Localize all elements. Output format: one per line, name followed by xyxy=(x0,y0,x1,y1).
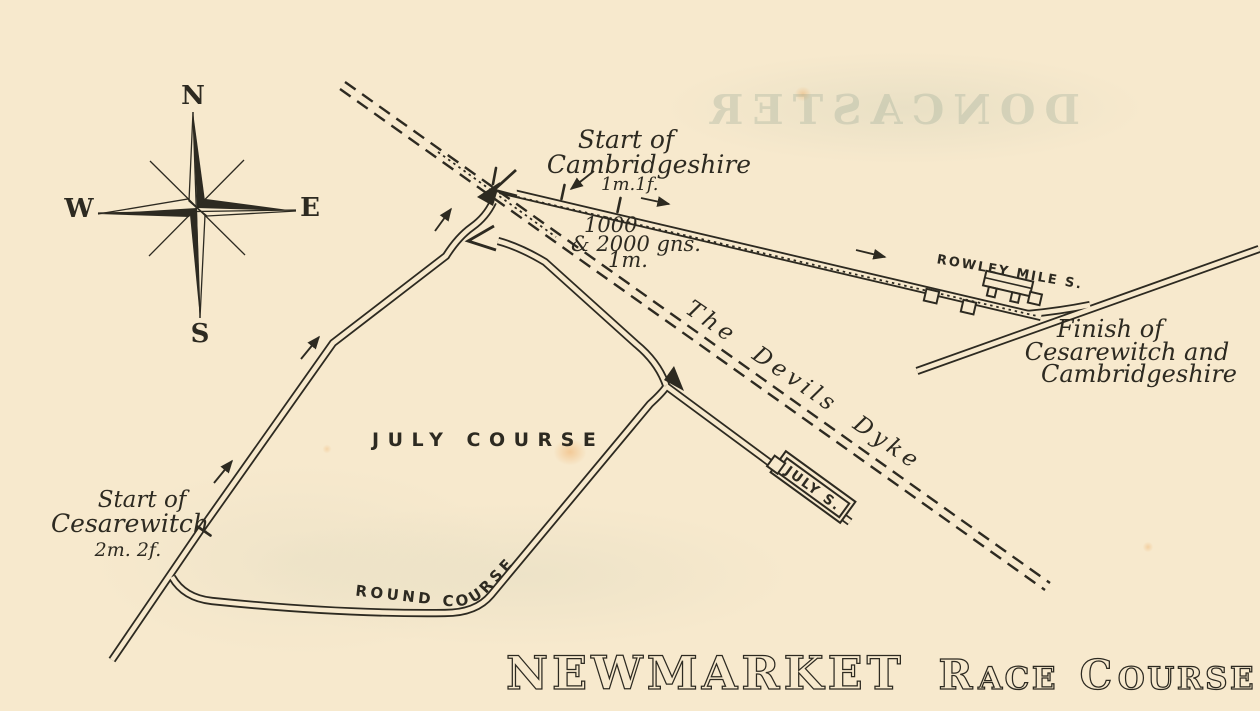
ghost-showthrough-text: DONCASTER xyxy=(700,86,1080,134)
track-network-outer xyxy=(112,190,1259,660)
devils-dyke-label: The Devils Dyke xyxy=(681,296,927,476)
cesarewitch-start-distance: 2m. 2f. xyxy=(94,539,162,561)
newmarket-race-course-map: DONCASTER xyxy=(0,0,1260,711)
title-word-race-cap: R xyxy=(938,651,973,699)
guineas-start-tick xyxy=(618,198,621,212)
title-word-course-rest: OURSE xyxy=(1118,661,1256,697)
compass-east-label: E xyxy=(300,193,320,223)
guineas-start-distance: 1m. xyxy=(608,248,648,272)
compass-rose: N S W E xyxy=(63,81,320,349)
track-network-inner xyxy=(112,190,1259,660)
finish-label-line3: Cambridgeshire xyxy=(1041,360,1237,388)
start-flag-tick xyxy=(493,168,496,184)
dyke-dotted-segment xyxy=(438,152,556,237)
cambridgeshire-start-tick xyxy=(562,185,565,199)
title-word-race-rest: ACE xyxy=(977,661,1058,697)
cambridgeshire-start-distance: 1m.1f. xyxy=(601,174,658,195)
round-course-label: ROUND COURSE xyxy=(355,553,519,610)
july-course-label: JULY COURSE xyxy=(370,429,604,451)
map-title: NEWMARKET R ACE C OURSE xyxy=(506,646,1256,700)
cesarewitch-start-label-line2: Cesarewitch xyxy=(51,509,209,538)
compass-north-label: N xyxy=(181,81,205,111)
title-word-newmarket: NEWMARKET xyxy=(506,646,905,700)
title-word-course-cap: C xyxy=(1080,651,1113,699)
rowley-start-funnel xyxy=(494,170,517,196)
july-course-stand: JULY S. xyxy=(767,451,855,523)
start-line-ticks xyxy=(198,185,621,536)
junction-solid-wedge xyxy=(477,182,500,206)
compass-west-label: W xyxy=(63,194,94,224)
map-canvas: DONCASTER xyxy=(0,0,1260,711)
compass-south-label: S xyxy=(191,319,210,349)
